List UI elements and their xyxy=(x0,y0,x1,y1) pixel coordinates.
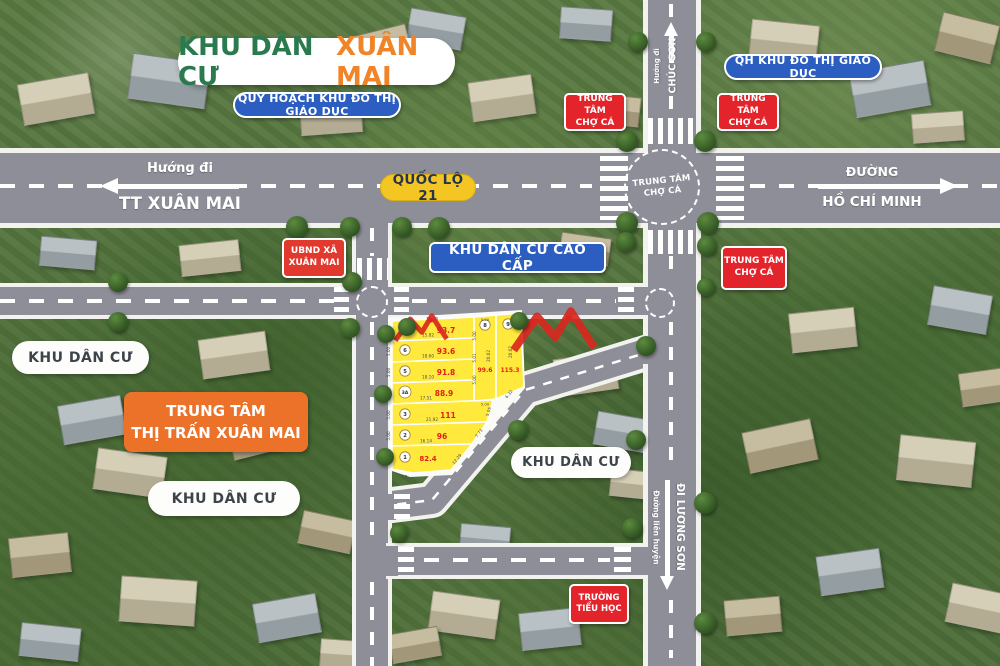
badge-label: UBND XÃ xyxy=(291,246,337,258)
svg-text:5.00: 5.00 xyxy=(472,331,477,341)
crosswalk xyxy=(618,287,634,315)
roundabout-mini-east xyxy=(645,288,675,318)
svg-text:21.92: 21.92 xyxy=(426,417,438,422)
page-title: KHU DÂN CƯ XUÂN MAI xyxy=(178,38,455,85)
svg-text:5.00: 5.00 xyxy=(481,317,490,322)
badge-khu-dan-cu-1: KHU DÂN CƯ xyxy=(12,341,149,374)
badge-label: TRUNG TÂM xyxy=(166,400,266,423)
tree-icon xyxy=(616,212,638,234)
tree-icon xyxy=(390,524,408,542)
house-roof xyxy=(944,582,1000,633)
svg-text:82.4: 82.4 xyxy=(419,455,436,463)
svg-text:91.8: 91.8 xyxy=(437,368,456,377)
tree-icon xyxy=(616,232,636,252)
tree-icon xyxy=(697,236,717,256)
house-roof xyxy=(816,548,885,597)
svg-text:5: 5 xyxy=(403,369,407,375)
svg-text:115.3: 115.3 xyxy=(501,367,520,374)
house-roof xyxy=(297,510,357,554)
tree-icon xyxy=(108,312,128,332)
tree-icon xyxy=(398,318,416,336)
tree-icon xyxy=(696,32,716,52)
house-roof xyxy=(118,575,197,626)
svg-text:5.01: 5.01 xyxy=(472,353,477,363)
svg-text:5.00: 5.00 xyxy=(386,347,391,357)
crosswalk xyxy=(648,230,696,254)
lane-divider xyxy=(412,299,616,303)
badge-label: CHỢ CÁ xyxy=(576,118,615,130)
house-roof xyxy=(39,236,97,271)
badge-khu-dan-cu-2: KHU DÂN CƯ xyxy=(148,481,300,516)
lane-divider xyxy=(370,322,374,540)
house-roof xyxy=(178,239,241,277)
house-roof xyxy=(927,285,993,335)
badge-label: KHU DÂN CƯ xyxy=(522,455,620,470)
tree-icon xyxy=(616,130,638,152)
house-roof xyxy=(559,6,613,42)
lane-divider xyxy=(669,4,673,20)
arrow-south-shaft xyxy=(665,480,670,576)
crosswalk xyxy=(334,287,349,315)
house-roof xyxy=(18,622,81,662)
arrow-south-icon xyxy=(660,576,674,590)
tree-icon xyxy=(622,518,642,538)
badge-khu-dan-cu-3: KHU DÂN CƯ xyxy=(511,447,631,478)
badge-label: CHỢ CÁ xyxy=(735,268,774,280)
house-roof xyxy=(8,532,72,578)
house-roof xyxy=(911,110,965,144)
badge-label: TRUNG TÂM xyxy=(724,256,784,268)
badge-cho-ca-1: TRUNG TÂM CHỢ CÁ xyxy=(564,93,626,131)
svg-text:6: 6 xyxy=(403,348,407,354)
badge-label: XUÂN MAI xyxy=(289,258,340,270)
crosswalk xyxy=(648,118,696,144)
tree-icon xyxy=(508,420,528,440)
lane-divider xyxy=(669,256,673,280)
lane-divider xyxy=(370,582,374,666)
house-roof xyxy=(198,330,271,379)
badge-trung-tam-thi-tran: TRUNG TÂM THỊ TRẤN XUÂN MAI xyxy=(124,392,308,452)
svg-text:99.6: 99.6 xyxy=(478,367,493,374)
svg-text:18.60: 18.60 xyxy=(422,354,434,359)
tree-icon xyxy=(376,448,394,466)
svg-text:18.10: 18.10 xyxy=(422,375,434,380)
badge-label: TIỂU HỌC xyxy=(576,604,621,615)
lane-divider xyxy=(669,96,673,118)
roundabout-label: TRUNG TÂMCHỢ CÁ xyxy=(632,173,692,200)
lane-divider xyxy=(370,228,374,256)
house-roof xyxy=(958,367,1000,408)
house-roof xyxy=(468,74,537,123)
tree-icon xyxy=(286,216,308,238)
direction-north-big: CHÚC SƠN xyxy=(668,35,679,97)
badge-truong-tieu-hoc: TRƯỜNG TIỂU HỌC xyxy=(569,584,629,624)
title-part-green: KHU DÂN CƯ xyxy=(178,32,328,92)
tree-icon xyxy=(108,272,128,292)
tree-icon xyxy=(694,612,716,634)
house-roof xyxy=(724,596,783,637)
tree-icon xyxy=(694,492,716,514)
house-roof xyxy=(934,12,1000,65)
lane-divider xyxy=(0,299,334,303)
badge-label: QUY HOẠCH KHU ĐÔ THỊ GIÁO DỤC xyxy=(235,92,399,118)
svg-text:111: 111 xyxy=(440,411,456,420)
direction-south-small: Đường liên huyện xyxy=(652,487,661,569)
lane-divider xyxy=(424,558,610,562)
roundabout-cho-ca: TRUNG TÂMCHỢ CÁ xyxy=(624,149,700,225)
badge-qh-giao-duc: QH KHU ĐÔ THỊ GIÁO DỤC xyxy=(724,54,882,80)
tree-icon xyxy=(636,336,656,356)
tree-icon xyxy=(392,217,412,237)
arrow-east-icon xyxy=(940,178,958,194)
svg-text:1: 1 xyxy=(403,455,407,461)
badge-cho-ca-2: TRUNG TÂM CHỢ CÁ xyxy=(717,93,779,131)
tree-icon xyxy=(428,217,450,239)
map-canvas: TRUNG TÂMCHỢ CÁ Hướng đi TT XUÂN MAI ĐƯỜ… xyxy=(0,0,1000,666)
direction-west-small: Hướng đi xyxy=(130,161,230,176)
crosswalk xyxy=(357,258,388,280)
svg-text:93.6: 93.6 xyxy=(437,347,456,356)
svg-text:3A: 3A xyxy=(402,390,409,396)
crosswalk xyxy=(394,494,410,520)
house-roof xyxy=(741,418,818,474)
badge-cao-cap: KHU DÂN CƯ CAO CẤP xyxy=(429,242,606,273)
direction-west-big: TT XUÂN MAI xyxy=(116,194,244,213)
svg-text:5.00: 5.00 xyxy=(386,368,391,378)
svg-text:88.9: 88.9 xyxy=(435,389,454,398)
house-roof xyxy=(17,72,95,126)
badge-label: KHU DÂN CƯ CAO CẤP xyxy=(431,242,604,274)
svg-text:5.00: 5.00 xyxy=(386,410,391,420)
svg-text:7.3: 7.3 xyxy=(401,475,408,480)
direction-north-small: Hướng đi xyxy=(653,43,661,89)
svg-text:8: 8 xyxy=(483,323,487,329)
badge-cho-ca-3: TRUNG TÂM CHỢ CÁ xyxy=(721,246,787,290)
house-roof xyxy=(428,590,501,639)
direction-south-big: ĐI LƯƠNG SƠN xyxy=(674,479,686,575)
badge-label: KHU DÂN CƯ xyxy=(28,350,133,366)
tree-icon xyxy=(697,278,715,296)
badge-label: QH KHU ĐÔ THỊ GIÁO DỤC xyxy=(726,54,880,80)
svg-text:5.00: 5.00 xyxy=(472,375,477,385)
badge-label: CHỢ CÁ xyxy=(729,118,768,130)
house-roof xyxy=(896,434,976,488)
svg-text:2: 2 xyxy=(403,433,407,439)
badge-ubnd-xa: UBND XÃ XUÂN MAI xyxy=(282,238,346,278)
house-roof xyxy=(388,626,442,664)
house-roof xyxy=(57,395,127,446)
badge-quy-hoach-giao-duc: QUY HOẠCH KHU ĐÔ THỊ GIÁO DỤC xyxy=(233,92,401,118)
tree-icon xyxy=(697,212,719,234)
badge-label: THỊ TRẤN XUÂN MAI xyxy=(131,422,301,445)
arrow-west-icon xyxy=(100,178,118,194)
crosswalk xyxy=(398,547,414,575)
badge-label: TRUNG TÂM xyxy=(719,94,777,117)
svg-text:5.00: 5.00 xyxy=(481,402,490,407)
tree-icon xyxy=(340,318,360,338)
tree-icon xyxy=(340,217,360,237)
svg-text:96: 96 xyxy=(437,432,447,441)
direction-east-big: HỒ CHÍ MINH xyxy=(810,194,934,210)
svg-text:17.51: 17.51 xyxy=(420,396,432,401)
lane-divider xyxy=(0,184,592,188)
house-roof xyxy=(252,593,322,644)
arrow-west-shaft xyxy=(117,184,239,189)
badge-label: TRƯỜNG xyxy=(579,593,620,604)
crosswalk xyxy=(716,156,744,220)
tree-icon xyxy=(694,130,716,152)
arrow-east-shaft xyxy=(818,184,940,189)
tree-icon xyxy=(374,385,392,403)
crosswalk xyxy=(614,547,631,575)
svg-text:5.00: 5.00 xyxy=(386,431,391,441)
badge-label: KHU DÂN CƯ xyxy=(172,491,277,507)
svg-text:20.02: 20.02 xyxy=(486,350,491,362)
direction-east-small: ĐƯỜNG xyxy=(822,164,922,179)
tree-icon xyxy=(377,325,395,343)
badge-quoc-lo-21: QUỐC LỘ 21 xyxy=(380,174,476,201)
badge-label: TRUNG TÂM xyxy=(566,94,624,117)
svg-text:16.14: 16.14 xyxy=(420,439,432,444)
tree-icon xyxy=(510,312,528,330)
house-roof xyxy=(788,307,858,354)
svg-text:3: 3 xyxy=(403,412,407,418)
tree-icon xyxy=(626,430,646,450)
title-part-orange: XUÂN MAI xyxy=(336,32,455,92)
badge-label: QUỐC LỘ 21 xyxy=(381,172,475,204)
tree-icon xyxy=(628,32,648,52)
junction-patch xyxy=(384,546,398,576)
lane-divider xyxy=(669,322,673,472)
lane-divider xyxy=(669,600,673,658)
